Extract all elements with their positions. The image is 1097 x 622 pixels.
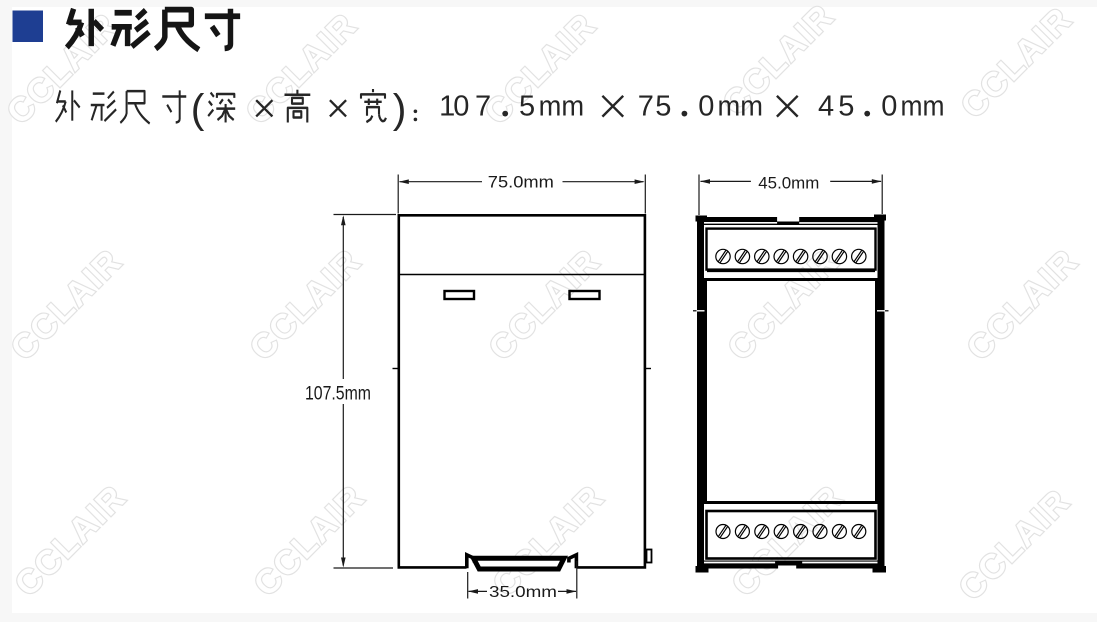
svg-text:mm: mm [901,91,945,123]
svg-text:5: 5 [838,91,854,123]
svg-text:7: 7 [475,91,491,123]
svg-text:35.0mm: 35.0mm [489,584,557,601]
svg-text:): ) [393,86,407,132]
svg-text:75.0mm: 75.0mm [488,173,554,191]
svg-text:5: 5 [519,91,535,123]
svg-text:4: 4 [818,91,834,123]
svg-text:7: 7 [638,91,654,123]
svg-text:(: ( [191,86,205,132]
svg-text:mm: mm [539,91,585,123]
svg-text:0: 0 [698,91,714,123]
svg-text:0: 0 [453,91,469,123]
svg-text:45.0mm: 45.0mm [758,175,819,193]
svg-text:0: 0 [881,91,897,123]
svg-text:5: 5 [655,91,671,123]
svg-text:107.5mm: 107.5mm [305,383,371,405]
svg-text:mm: mm [718,91,764,123]
